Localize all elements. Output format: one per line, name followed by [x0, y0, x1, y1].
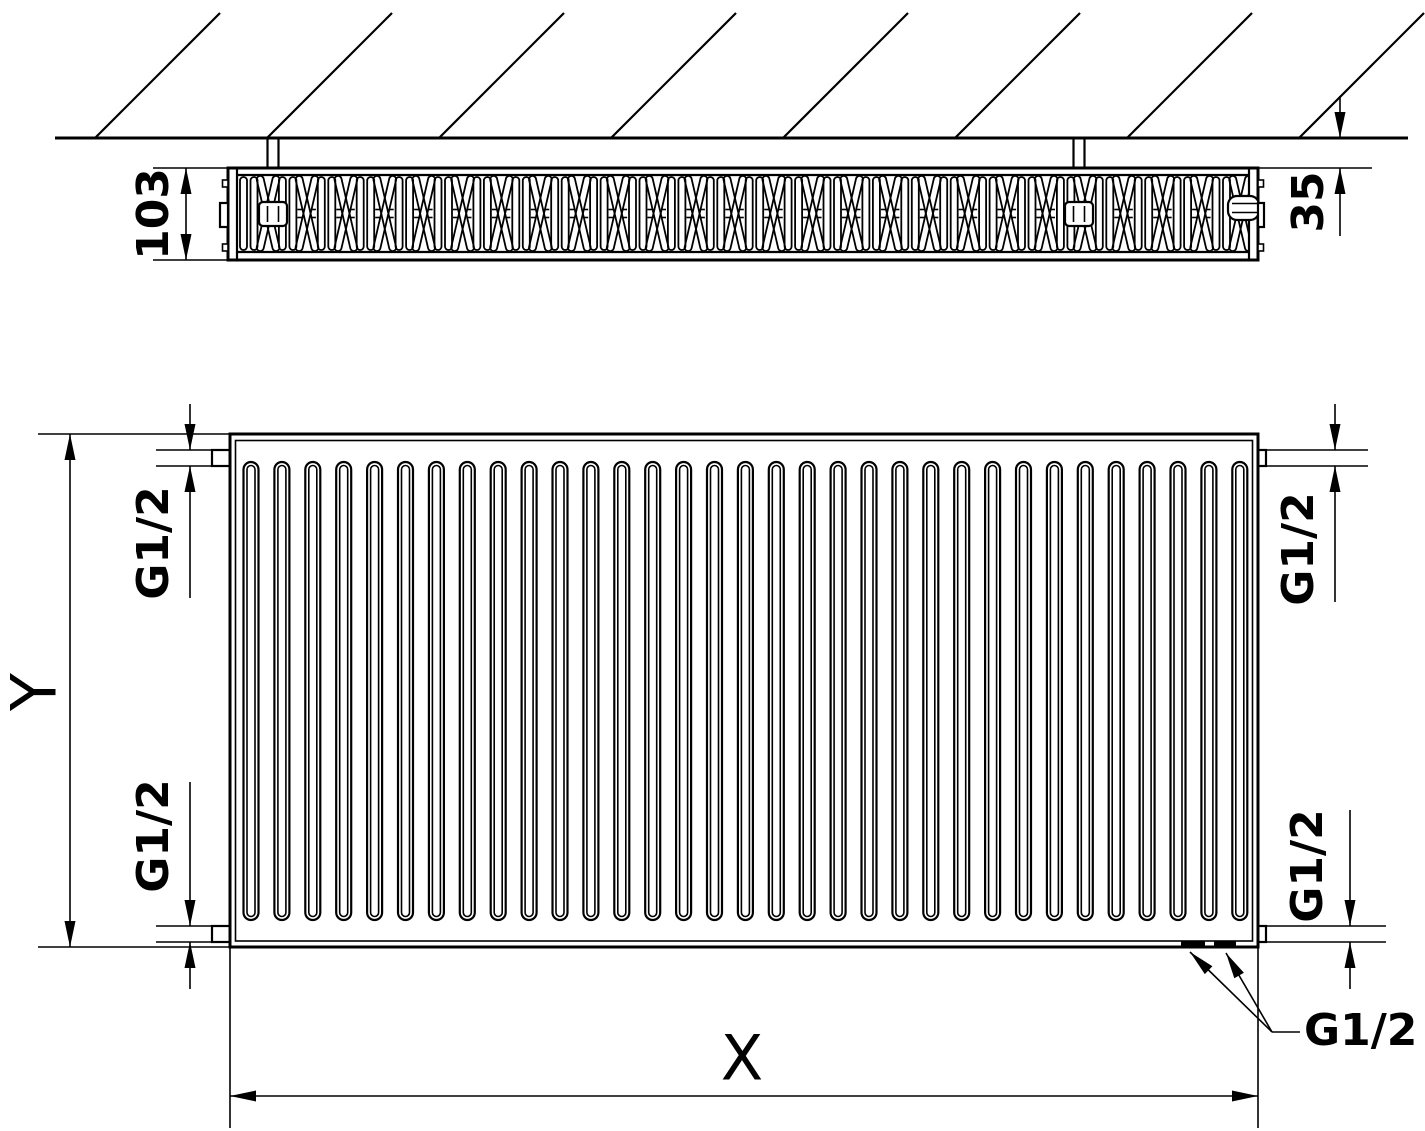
label-height: Y	[0, 673, 70, 712]
bracket-clip-right	[1065, 202, 1093, 226]
connection-pipe-right	[1228, 196, 1259, 220]
top-view	[220, 138, 1264, 260]
label-thread-bottom-left: G1/2	[128, 779, 179, 892]
bottom-connection	[1214, 942, 1236, 949]
dim-thread-bottom-left: G1/2	[128, 779, 212, 989]
dim-depth: 103	[128, 168, 228, 260]
collar-top-left	[212, 450, 230, 466]
collar-bottom-left	[212, 926, 230, 942]
label-thread-top-right: G1/2	[1273, 492, 1324, 605]
cap-clip	[223, 244, 229, 251]
bracket-clip-left	[259, 202, 287, 226]
leader-thread-bottom: G1/2	[1190, 952, 1417, 1056]
side-tab-right	[1258, 203, 1264, 227]
label-thread-bottom-right: G1/2	[1282, 809, 1333, 922]
label-width: X	[721, 1021, 763, 1094]
dim-wall-gap: 35	[1259, 96, 1372, 236]
front-panel	[230, 434, 1258, 947]
label-wall-gap: 35	[1283, 171, 1334, 232]
wall-hatching	[95, 13, 1424, 138]
bottom-connection	[1181, 942, 1205, 949]
front-view	[212, 434, 1266, 949]
cap-clip	[223, 180, 229, 187]
dim-thread-bottom-right: G1/2	[1266, 809, 1386, 989]
label-thread-bottom-center: G1/2	[1304, 1005, 1417, 1056]
mounting-bracket-right	[1074, 138, 1085, 170]
dim-height: Y	[0, 434, 230, 947]
label-depth: 103	[128, 168, 179, 260]
label-thread-top-left: G1/2	[128, 486, 179, 599]
cap-clip	[1258, 180, 1264, 187]
radiator-technical-drawing: 103 35 Y X	[0, 0, 1425, 1131]
mounting-bracket-left	[268, 138, 279, 170]
side-tab-left	[220, 203, 228, 227]
radiator-drawing-svg: 103 35 Y X	[0, 0, 1425, 1131]
dim-width: X	[230, 947, 1258, 1128]
dim-thread-top-right: G1/2	[1266, 404, 1368, 606]
cap-clip	[1258, 244, 1264, 251]
